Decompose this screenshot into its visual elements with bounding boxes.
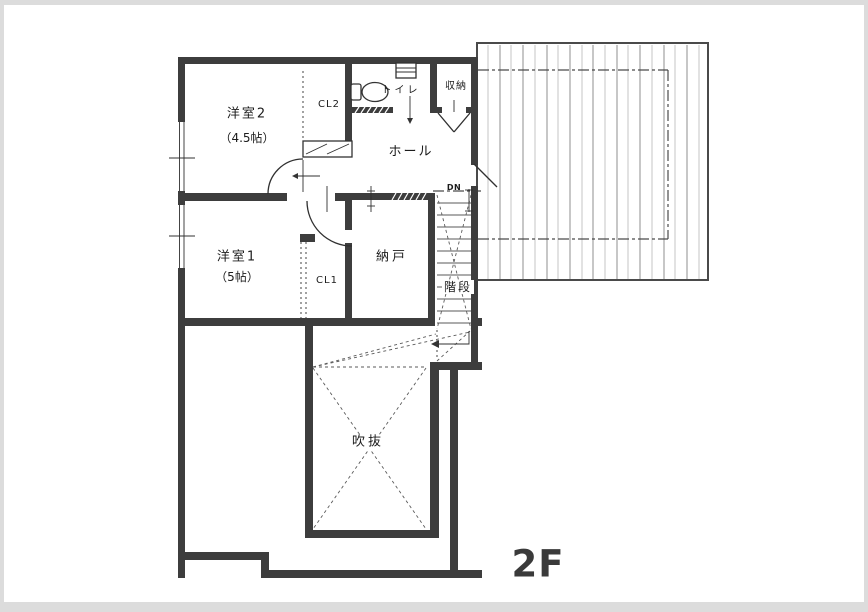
room-label-toilet: トイレ — [382, 86, 421, 96]
floor-plan-canvas: 洋室2 （4.5帖） CL2 トイレ 収納 ホール DN 洋室1 （5帖） CL… — [0, 0, 868, 612]
room-label-storage: 収納 — [445, 82, 467, 92]
cl1-boundary-lines — [301, 242, 306, 318]
toilet-window — [396, 63, 416, 78]
yoshitsu2-door — [268, 159, 320, 194]
room-label-stairs: 階段 — [442, 280, 474, 294]
room-label-nando: 納戸 — [376, 251, 408, 264]
storage-folding-door — [438, 100, 470, 132]
room-label-cl2: CL2 — [318, 100, 340, 110]
stair-steps — [437, 203, 471, 323]
left-wall-window-lower — [169, 205, 195, 268]
void-dashed-marks — [313, 330, 470, 529]
room-size-yoshitsu2: （4.5帖） — [219, 132, 274, 144]
left-wall-window-upper — [169, 122, 195, 191]
stairs-direction-label: DN — [447, 184, 461, 192]
room-label-cl1: CL1 — [316, 276, 338, 286]
room-label-hall: ホール — [388, 146, 433, 159]
floor-plan-drawing — [0, 0, 868, 612]
floor-label: 2F — [511, 546, 564, 583]
roof-hatch-area — [477, 43, 708, 280]
cl2-sliding-door — [303, 141, 352, 157]
toilet-door — [407, 96, 413, 124]
room-size-yoshitsu1: （5帖） — [215, 271, 259, 283]
room-label-void: 吹抜 — [350, 435, 386, 450]
room-label-yoshitsu2: 洋室2 — [227, 108, 267, 121]
room-label-yoshitsu1: 洋室1 — [217, 251, 257, 264]
